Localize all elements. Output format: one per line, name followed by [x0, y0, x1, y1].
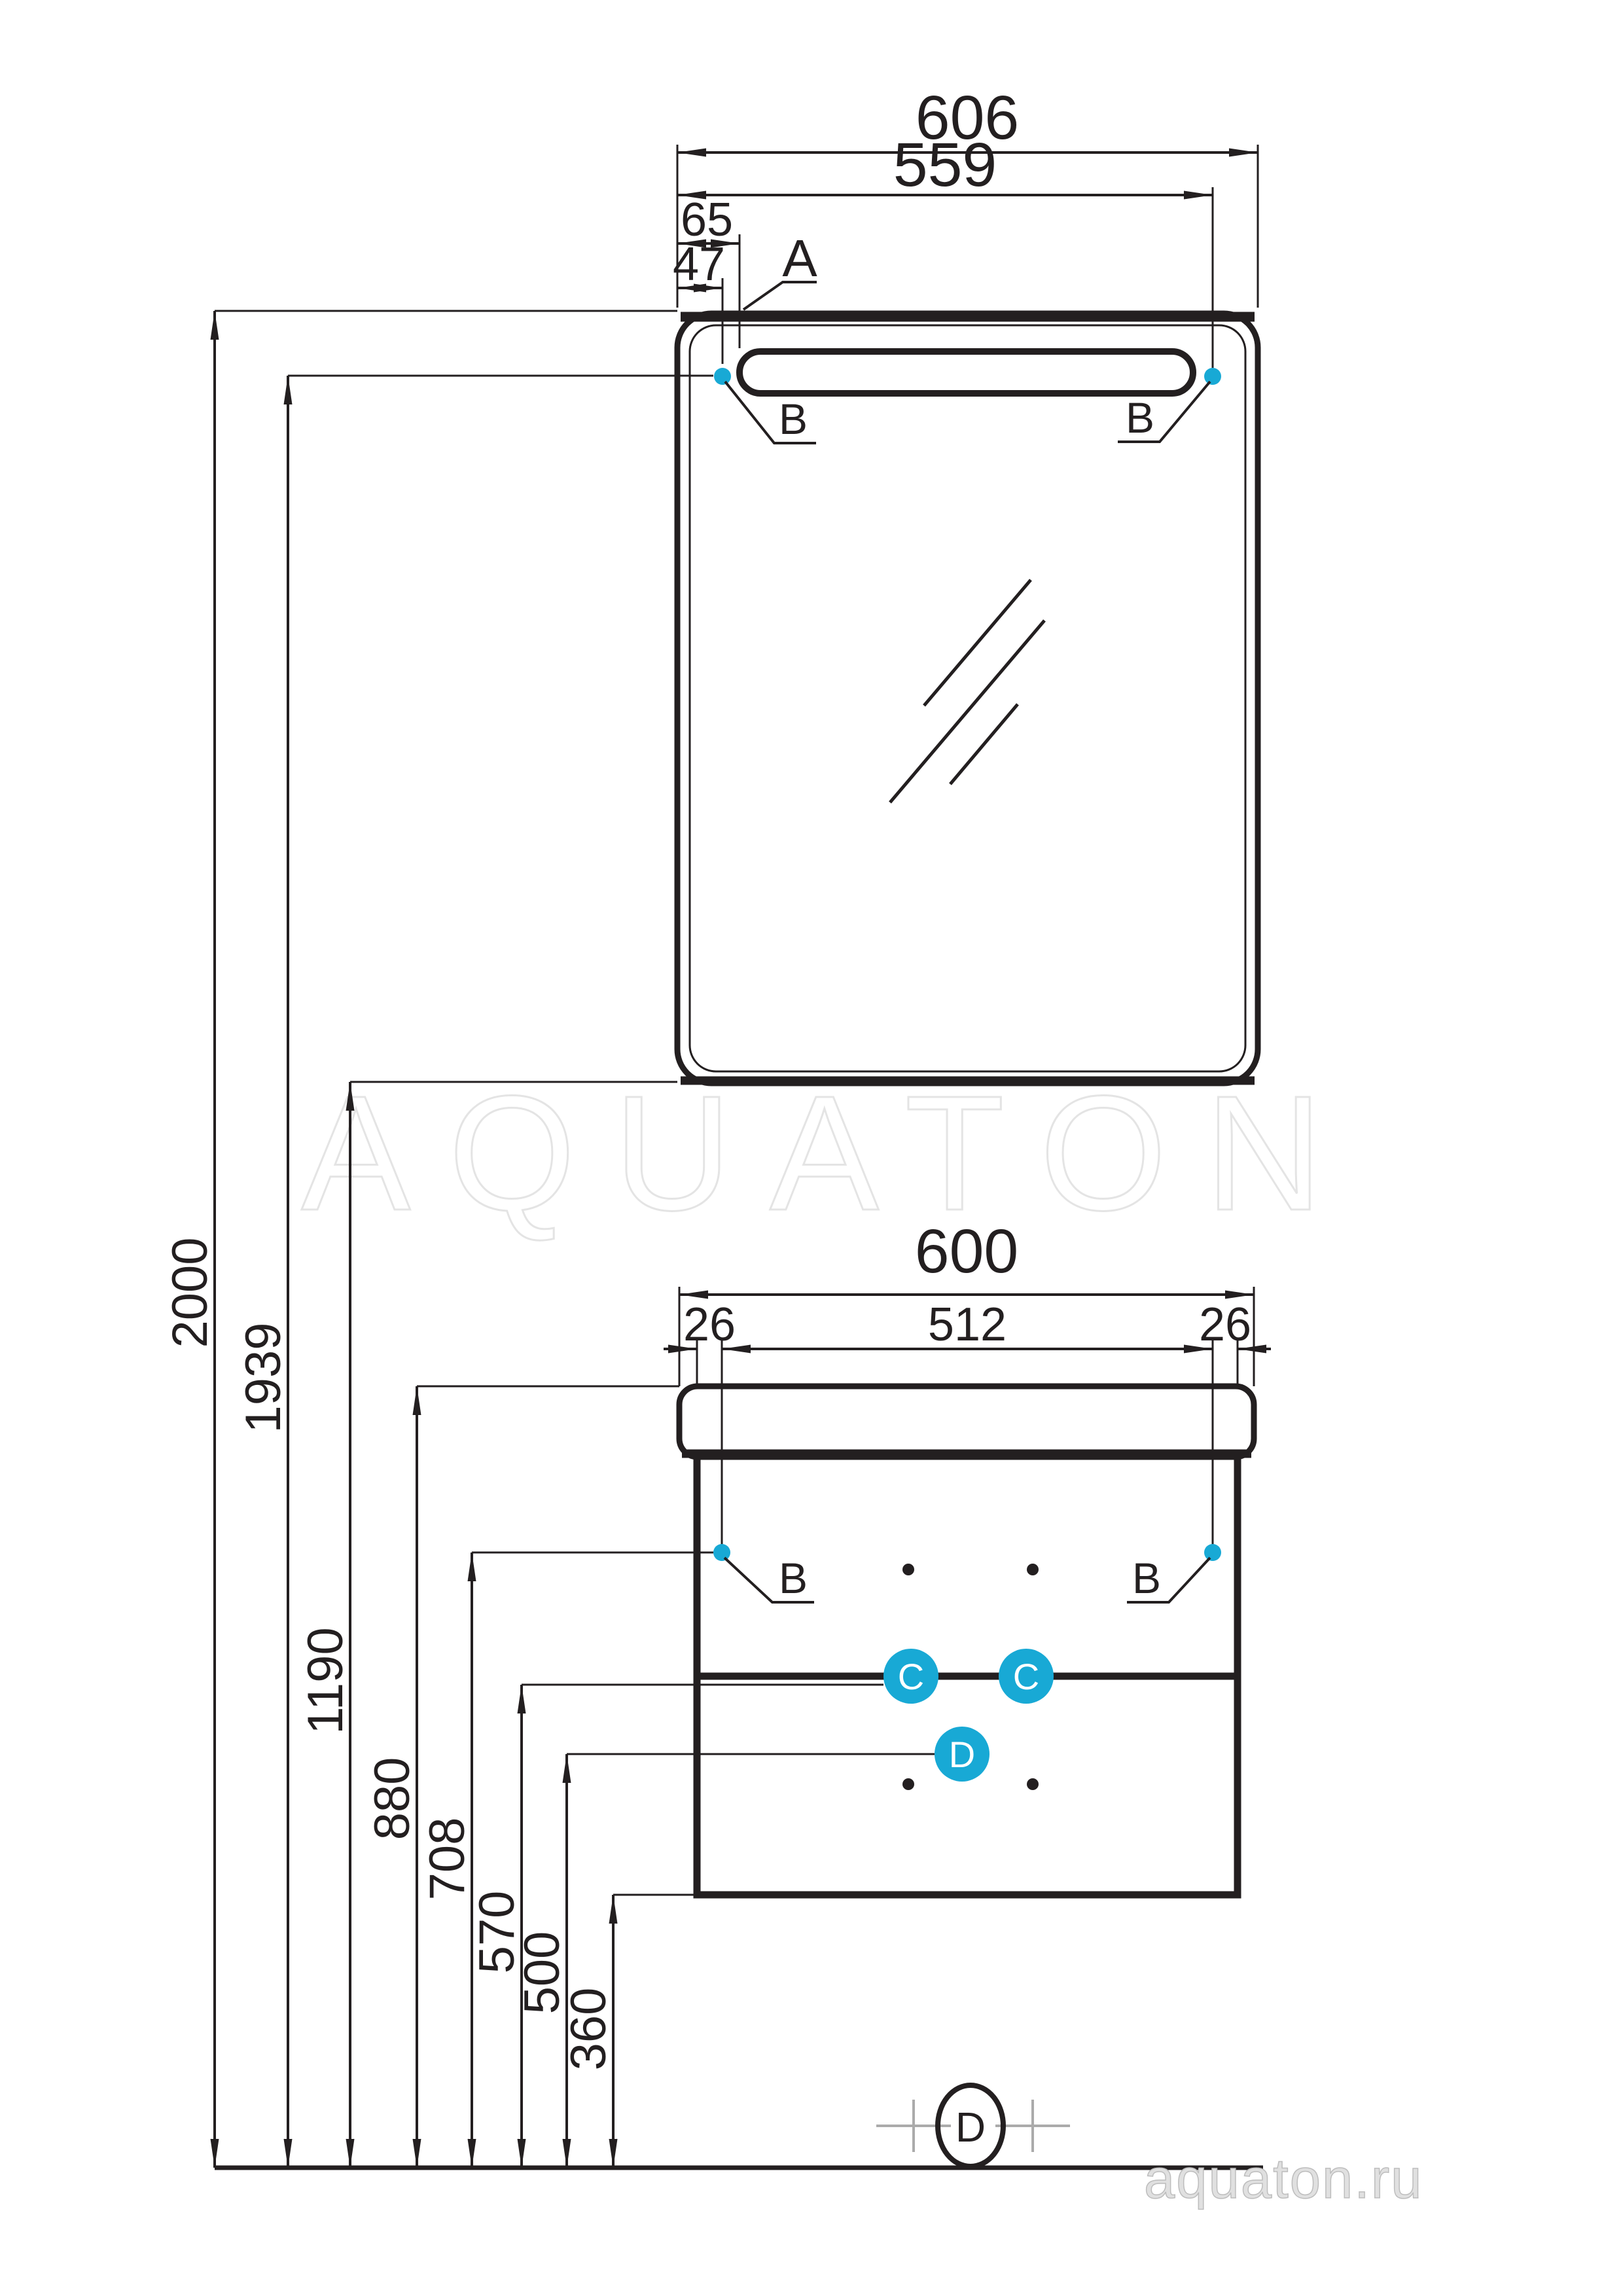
cabinet-view: 600 26 512 26 B B C	[664, 1217, 1271, 1895]
mirror-label-a: A	[782, 229, 817, 287]
website-watermark: aquaton.ru	[1144, 2148, 1423, 2210]
mirror-glass-marks	[890, 580, 1044, 802]
height-dim-1939: 1939	[236, 1322, 291, 1433]
cabinet-label-b-left: B	[779, 1554, 808, 1602]
cabinet-mount-point-left	[713, 1544, 730, 1561]
height-dim-1190: 1190	[298, 1627, 353, 1734]
mirror-lamp-slot	[740, 351, 1193, 393]
cabinet-side-right-dim: 26	[1199, 1299, 1251, 1351]
cabinet-basin-top	[679, 1386, 1254, 1457]
cabinet-hole-span-dim: 512	[928, 1299, 1007, 1351]
mirror-mount-point-left	[714, 368, 731, 385]
marker-d-label: D	[949, 1734, 975, 1775]
technical-drawing-page: AQUATON 2000 1939 1190 880 708 570 500 3…	[0, 0, 1623, 2296]
mirror-view: 606 559 65 47 A B B	[673, 83, 1258, 1083]
height-dim-708: 708	[419, 1818, 475, 1901]
floor-drain-label: D	[955, 2104, 986, 2151]
brand-watermark: AQUATON	[301, 1062, 1361, 1244]
mirror-label-b-left: B	[779, 395, 808, 443]
height-dim-2000: 2000	[162, 1237, 218, 1348]
marker-c-left-label: C	[898, 1656, 924, 1697]
cabinet-mount-point-right	[1204, 1544, 1221, 1561]
marker-c-right-label: C	[1013, 1656, 1039, 1697]
cabinet-side-left-dim: 26	[683, 1299, 736, 1351]
floor: D aquaton.ru	[215, 2085, 1423, 2210]
mirror-label-b-right: B	[1126, 393, 1154, 442]
mirror-hole-offset-dim: 47	[673, 238, 725, 291]
drawing-canvas: AQUATON 2000 1939 1190 880 708 570 500 3…	[0, 0, 1623, 2296]
cabinet-width-dim: 600	[915, 1217, 1019, 1286]
height-dim-360: 360	[561, 1988, 616, 2071]
height-dim-880: 880	[365, 1757, 420, 1840]
mirror-hole-span-dim: 559	[893, 130, 997, 200]
cabinet-label-b-right: B	[1132, 1554, 1161, 1602]
mirror-mount-point-right	[1204, 368, 1221, 385]
